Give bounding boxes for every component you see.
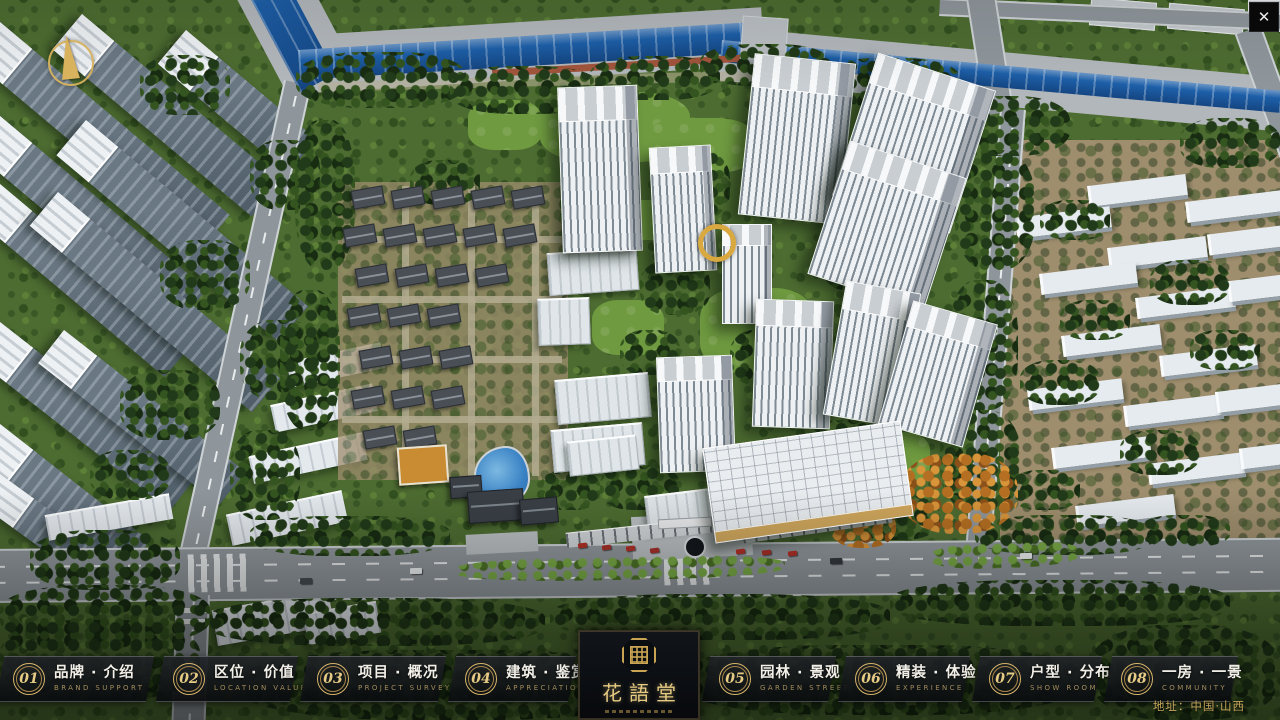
tree-grove bbox=[1180, 118, 1280, 168]
car bbox=[788, 550, 798, 556]
menu-badge-05: 05 bbox=[719, 663, 751, 695]
midrise-building bbox=[537, 297, 591, 346]
tree-grove bbox=[205, 598, 545, 646]
car bbox=[736, 548, 746, 554]
crosswalk bbox=[188, 553, 249, 592]
tower bbox=[752, 299, 834, 430]
tree-grove bbox=[280, 290, 340, 430]
menu-item-architecture[interactable]: 04 建筑 · 鉴赏 APPRECIATION bbox=[448, 656, 576, 702]
car bbox=[1020, 553, 1032, 559]
tree-grove bbox=[230, 430, 300, 520]
chinese-roof-building bbox=[467, 488, 525, 524]
tower bbox=[557, 85, 643, 254]
brand-seal-icon bbox=[622, 638, 656, 672]
tree-grove bbox=[140, 55, 230, 115]
tree-grove bbox=[1150, 260, 1230, 305]
midrise-building bbox=[554, 372, 652, 425]
midrise-building bbox=[547, 247, 640, 296]
presentation-screen: ✕ 01 品牌 · 介绍 BRAND SUPPORT 02 区位 · 价值 LO… bbox=[0, 0, 1280, 720]
tree-grove bbox=[1190, 330, 1260, 370]
car bbox=[830, 558, 842, 564]
tree-grove bbox=[296, 52, 466, 108]
brand-caption-line bbox=[605, 710, 673, 713]
brand-logo-panel[interactable]: 花語堂 bbox=[578, 630, 700, 720]
tree-grove bbox=[1020, 360, 1100, 405]
menu-item-interior-experience[interactable]: 06 精装 · 体验 EXPERIENCE bbox=[838, 656, 970, 702]
car bbox=[602, 544, 612, 550]
brand-title: 花語堂 bbox=[595, 677, 683, 706]
plaza bbox=[466, 531, 539, 555]
menu-badge-01: 01 bbox=[13, 663, 45, 695]
car bbox=[626, 545, 636, 551]
menu-item-brand-intro[interactable]: 01 品牌 · 介绍 BRAND SUPPORT bbox=[0, 656, 154, 702]
close-button[interactable]: ✕ bbox=[1249, 2, 1279, 32]
menu-item-unit-layouts[interactable]: 07 户型 · 分布 SHOW ROOM bbox=[972, 656, 1102, 702]
project-address: 地址：中国·山西 bbox=[1153, 698, 1245, 714]
car bbox=[762, 549, 772, 555]
tree-grove bbox=[30, 530, 180, 590]
tree-grove bbox=[160, 240, 250, 310]
car bbox=[300, 578, 312, 584]
tree-grove bbox=[890, 580, 1230, 626]
menu-badge-04: 04 bbox=[465, 663, 497, 695]
tree-grove bbox=[250, 516, 450, 556]
menu-badge-02: 02 bbox=[173, 663, 205, 695]
tree-grove bbox=[0, 585, 210, 645]
chinese-roof-building bbox=[519, 496, 559, 525]
orange-tree-grove bbox=[900, 452, 1018, 534]
entrance-fountain bbox=[684, 536, 706, 558]
menu-item-garden-landscape[interactable]: 05 园林 · 景观 GARDEN STREET bbox=[702, 656, 836, 702]
commercial-building bbox=[566, 434, 639, 476]
tree-grove bbox=[1060, 300, 1130, 340]
car bbox=[410, 568, 422, 574]
tree-grove bbox=[1120, 430, 1200, 475]
menu-badge-08: 08 bbox=[1121, 663, 1153, 695]
path bbox=[342, 296, 562, 303]
compass-icon bbox=[44, 36, 98, 90]
tree-grove bbox=[1010, 470, 1080, 510]
menu-badge-06: 06 bbox=[855, 663, 887, 695]
menu-badge-03: 03 bbox=[317, 663, 349, 695]
car bbox=[578, 542, 588, 548]
menu-item-project-survey[interactable]: 03 项目 · 概况 PROJECT SURVEY bbox=[300, 656, 446, 702]
gold-ring-sculpture bbox=[698, 224, 736, 262]
menu-item-location-value[interactable]: 02 区位 · 价值 LOCATION VALUE bbox=[156, 656, 298, 702]
car bbox=[650, 547, 660, 553]
tree-grove bbox=[1040, 200, 1110, 240]
path bbox=[342, 416, 562, 423]
building bbox=[1239, 443, 1280, 469]
tree-grove bbox=[120, 370, 220, 440]
tree-grove bbox=[90, 450, 170, 500]
menu-badge-07: 07 bbox=[989, 663, 1021, 695]
sales-gallery bbox=[397, 444, 450, 485]
menu-item-room-view[interactable]: 08 一房 · 一景 COMMUNITY bbox=[1104, 656, 1238, 702]
